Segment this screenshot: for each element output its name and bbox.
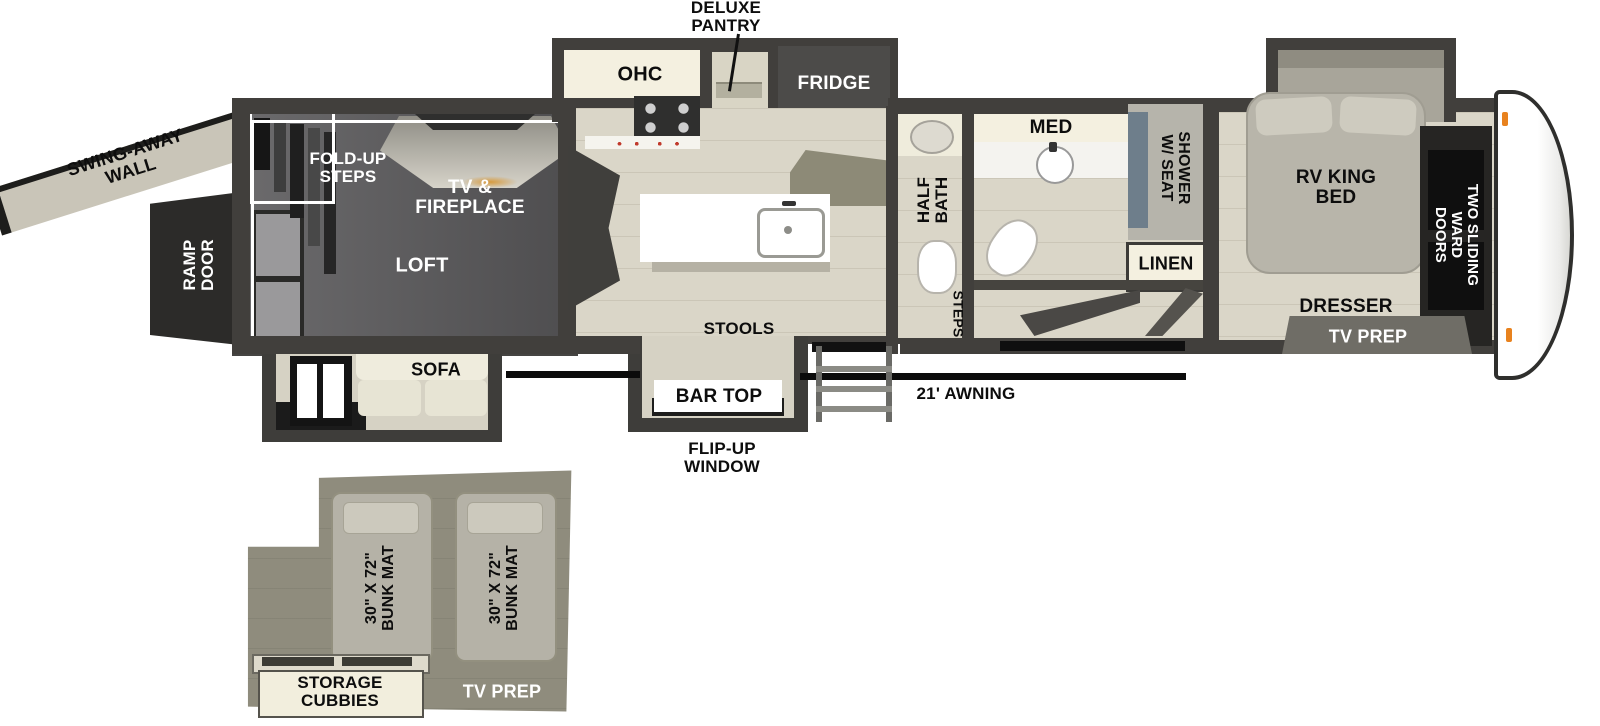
marker-light [1506,328,1512,342]
stove-counter-edge [585,136,700,149]
sofa-label: SOFA [411,360,461,379]
pillow [1255,96,1333,136]
half-bath-left-wall [886,106,898,354]
loft-label: LOFT [395,255,448,276]
fridge-label: FRIDGE [798,74,871,94]
wardrobe-label: TWO SLIDING WARD DOORS [1432,183,1480,288]
window-pane [297,364,317,418]
bottom-wall [560,336,640,354]
entry-steps-rung [816,406,892,412]
bottom-window [1000,341,1185,351]
half-bath-sink [910,120,954,154]
bottom-wall [232,336,578,354]
bath-hall-wall [974,280,1204,290]
shower-glass [1128,112,1148,228]
tv-fireplace-label: TV & FIREPLACE [415,178,525,218]
marker-light [1502,112,1508,126]
awning-line [506,371,640,378]
pillow [1339,96,1417,136]
ramp-door-label: RAMP DOOR [181,236,217,294]
sofa-cushion [358,380,421,416]
awning-line [800,373,1186,380]
bed-slide-headboard [1278,50,1444,68]
rear-wall [232,98,250,354]
storage-cubby-slot [342,657,412,666]
half-bath-label: HALF BATH [915,174,951,226]
flip-up-window-label: FLIP-UP WINDOW [675,440,770,476]
bar-top-label: BAR TOP [676,387,763,407]
shower-label: SHOWER W/ SEAT [1157,128,1191,208]
fold-up-steps-label: FOLD-UP STEPS [302,150,394,186]
sink-drain [784,226,792,234]
island-sink [757,208,825,258]
storage-cubby-slot [262,657,334,666]
steps-label: STEPS [951,284,966,344]
sofa-cushion [425,380,487,416]
entry-steps-rung [816,366,892,372]
bath-faucet [1049,142,1057,152]
pantry-interior [712,52,768,110]
pantry-shelf [716,82,762,98]
bunk-mat-left-label: 30" X 72" BUNK MAT [364,528,398,648]
top-wall [232,98,576,114]
bedroom-tv-prep-label: TV PREP [1329,327,1407,346]
awning-label: 21' AWNING [917,385,1016,403]
sink-faucet [782,201,796,206]
stove [634,96,700,138]
rv-king-bed-label: RV KING BED [1291,168,1381,208]
dresser-label: DRESSER [1299,297,1392,317]
entry-steps-rung [816,386,892,392]
rv-floorplan: SWING-AWAY WALL RAMP DOOR FOLD-UP STEPS … [0,0,1600,726]
loft-tv-prep-label: TV PREP [463,682,541,701]
bath-bedroom-wall [1203,98,1219,354]
window-pane [323,364,344,418]
deluxe-pantry-label: DELUXE PANTRY [681,0,771,35]
bunk-mat-right-label: 30" X 72" BUNK MAT [488,528,522,648]
ohc-label: OHC [617,64,662,85]
med-label: MED [1030,118,1073,138]
linen-label: LINEN [1139,254,1194,273]
storage-cubbies-label: STORAGE CUBBIES [285,674,395,710]
